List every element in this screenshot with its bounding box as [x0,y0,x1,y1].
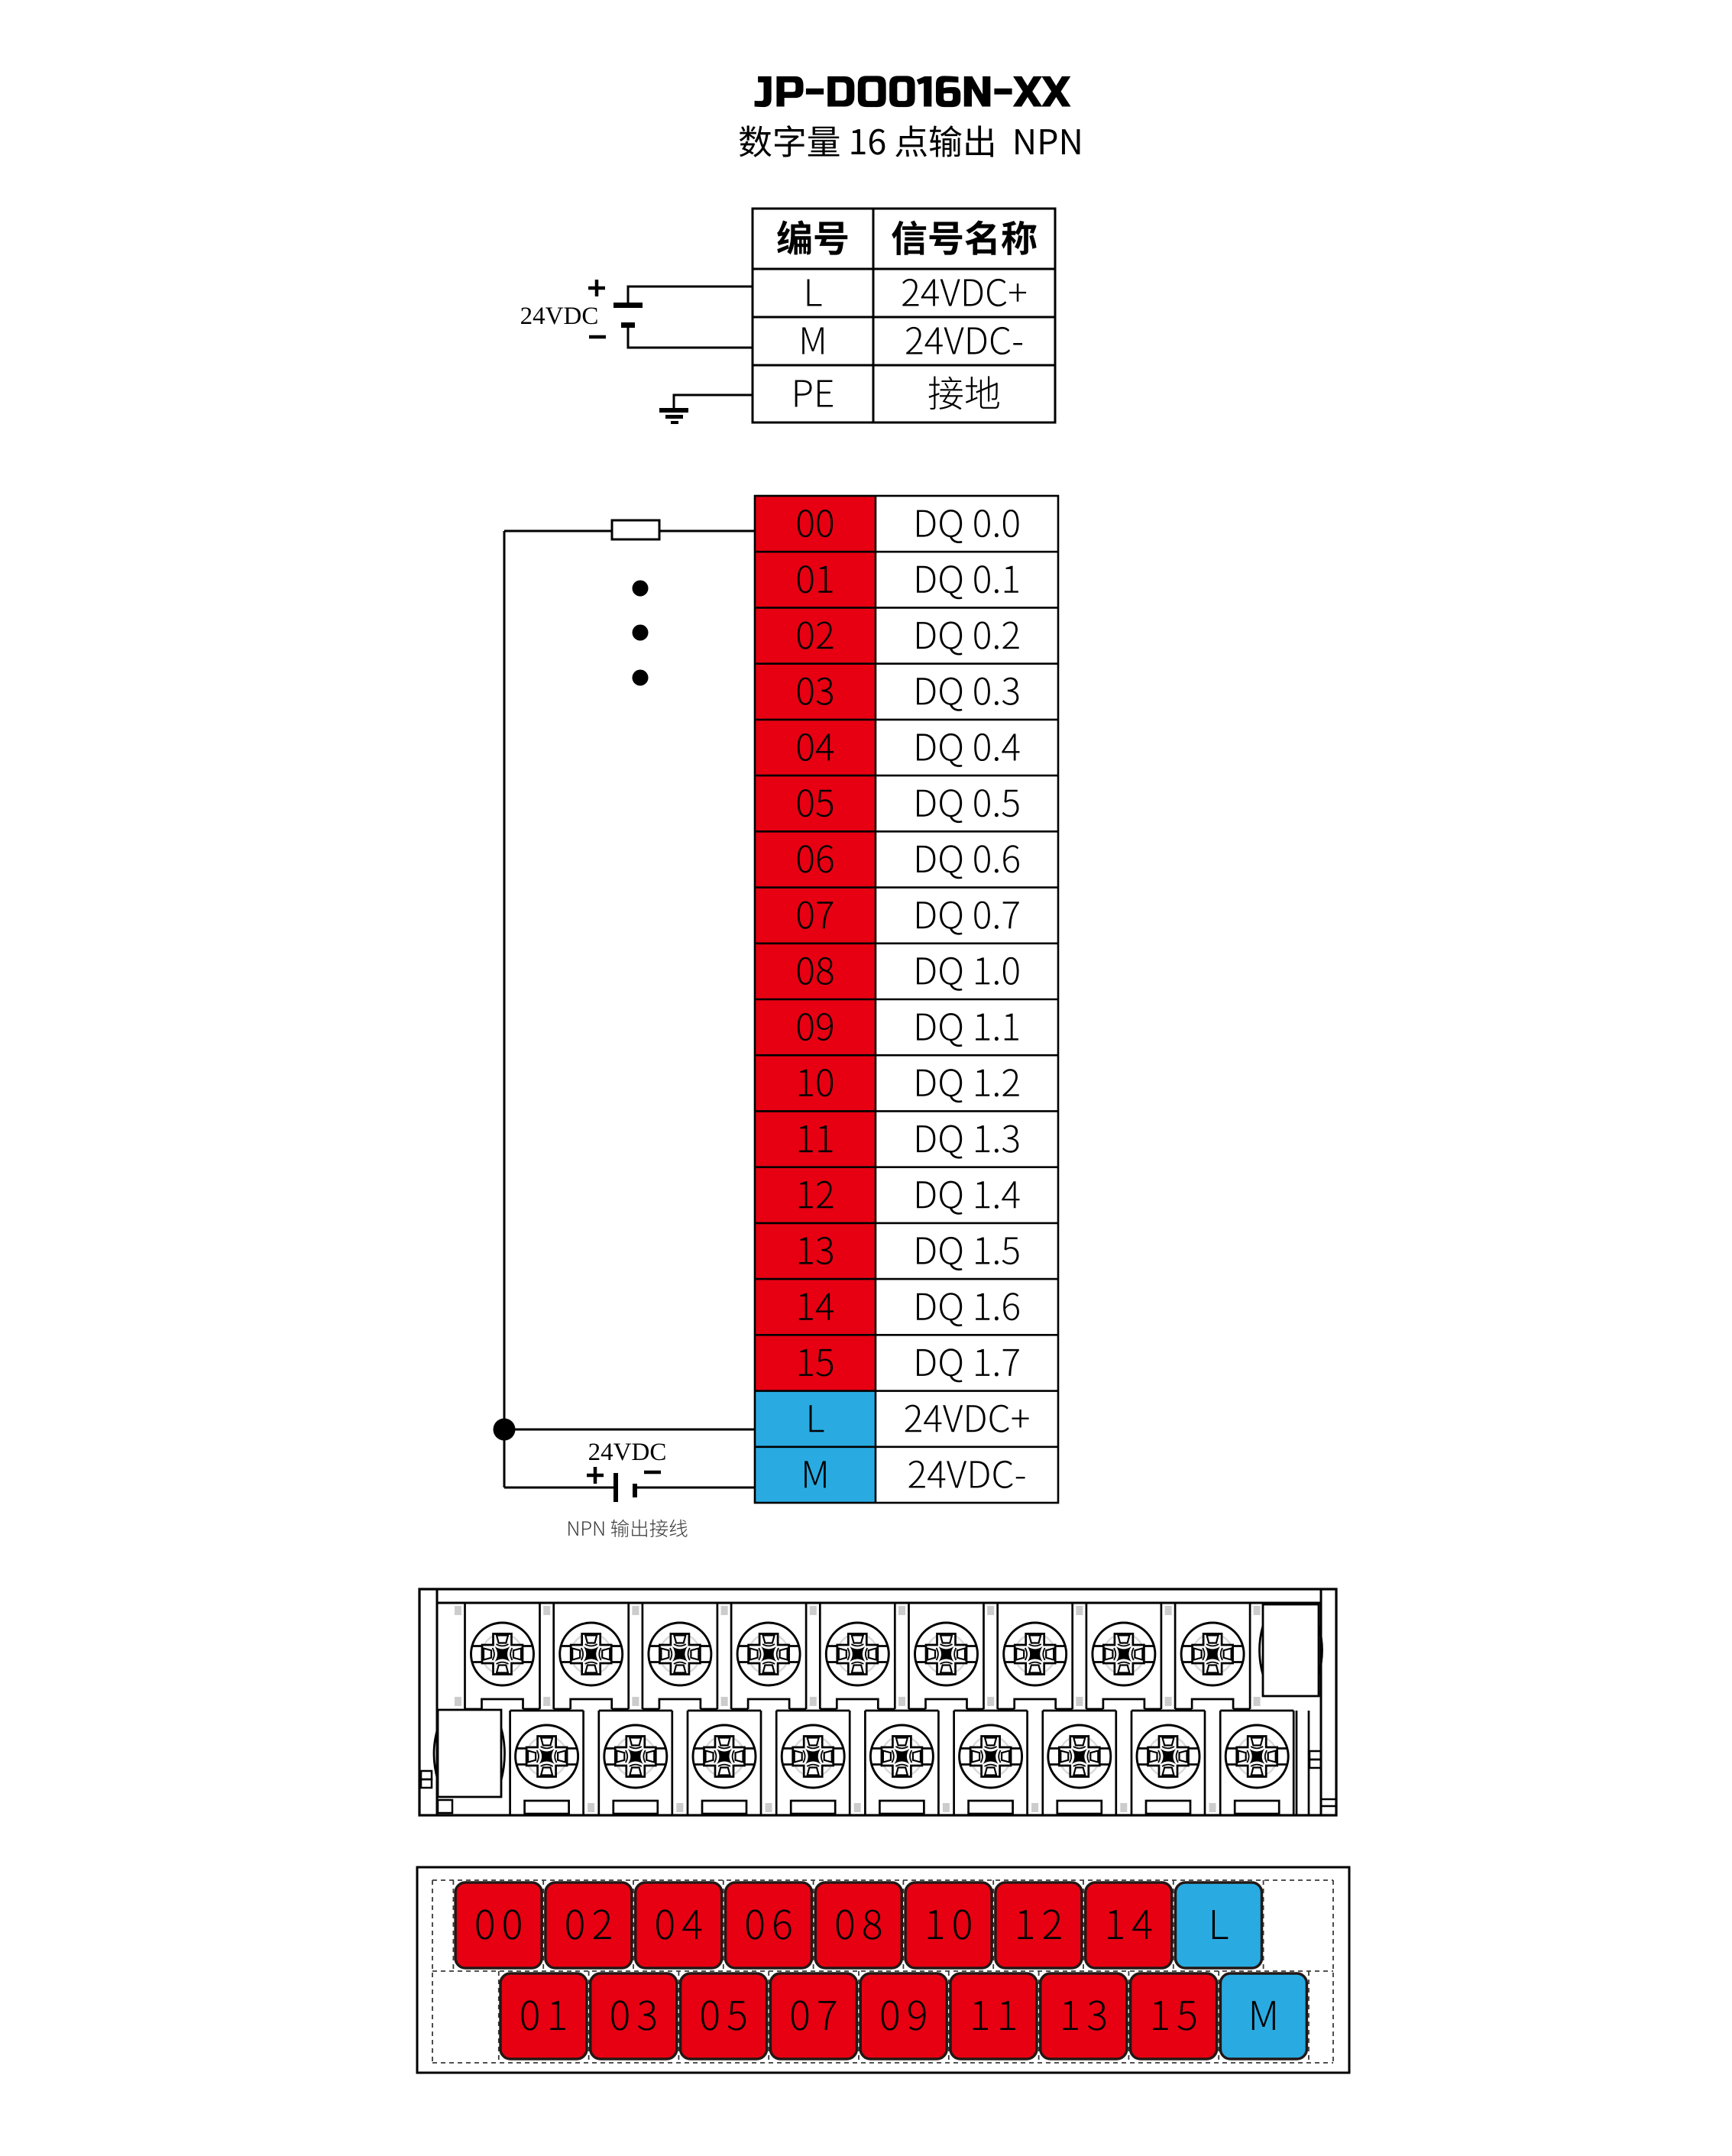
svg-text:24VDC: 24VDC [588,1439,667,1466]
svg-text:24VDC: 24VDC [520,303,599,330]
